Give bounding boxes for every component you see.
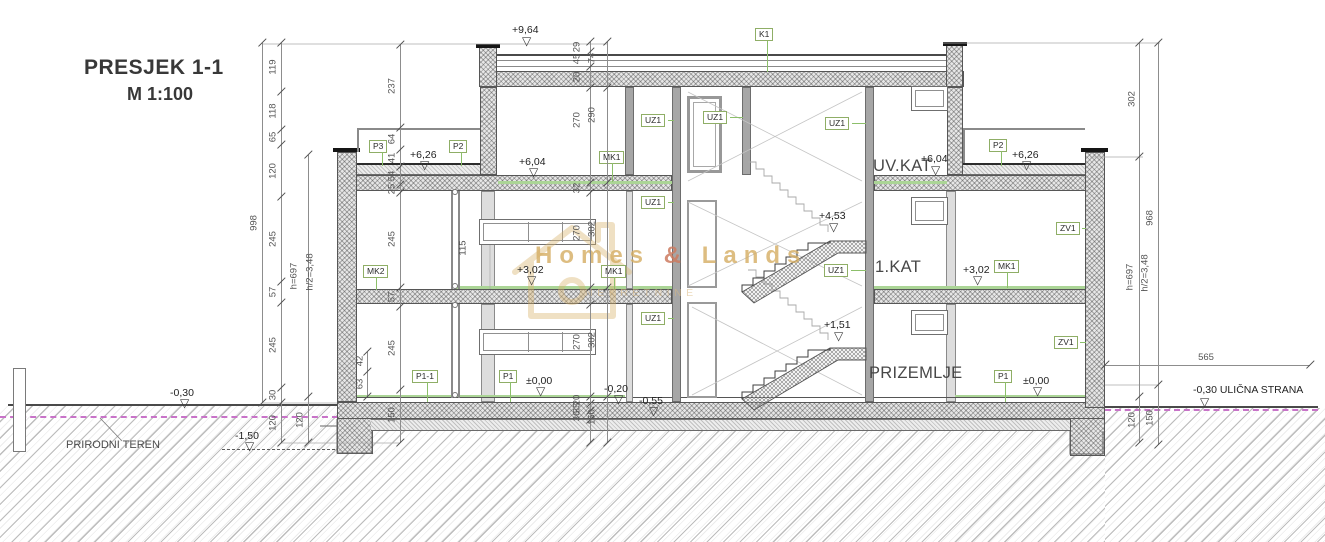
dim-label: 270	[572, 225, 583, 241]
tag-label-uz1: UZ1	[641, 312, 665, 325]
tag-label-p1-1: P1-1	[412, 370, 438, 383]
dim-label: 25	[387, 184, 398, 195]
watermark-brand: Homes & Lands	[535, 242, 807, 270]
dim-label: 270	[572, 334, 583, 350]
dim-label: 65	[268, 132, 279, 143]
tag-leader-line	[612, 163, 613, 182]
tag-label-uz1: UZ1	[641, 196, 665, 209]
dim-chain-line	[367, 352, 368, 397]
dim-label: 245	[387, 231, 398, 247]
tag-label-p3: P3	[369, 140, 387, 153]
tag-label-zv1: ZV1	[1054, 336, 1078, 349]
dim-label: 57	[268, 287, 279, 298]
dim-label: 245	[268, 337, 279, 353]
tag-label-uz1: UZ1	[703, 111, 727, 124]
watermark-subline: NEKRETNINE	[585, 287, 698, 299]
tag-label-p1: P1	[499, 370, 517, 383]
dim-label: 968	[1145, 210, 1156, 226]
level-triangle-icon: ▽	[1022, 160, 1031, 170]
tag-leader-line	[1005, 382, 1006, 402]
dim-label: 290	[587, 107, 598, 123]
dim-label: 120	[268, 163, 279, 179]
dim-label: 120	[295, 412, 306, 428]
dim-label: 120	[268, 415, 279, 431]
level-triangle-icon: ▽	[1033, 386, 1042, 396]
dim-label: 245	[387, 340, 398, 356]
drawing-scale: M 1:100	[127, 84, 193, 105]
dim-label: 270	[572, 112, 583, 128]
tag-label-uz1: UZ1	[824, 264, 848, 277]
tag-leader-line	[730, 117, 743, 118]
dim-label: 57	[387, 292, 398, 303]
dim-chain-line	[400, 45, 401, 443]
note-text: 115	[458, 240, 469, 255]
tag-leader-line	[427, 382, 428, 402]
drawing-title: PRESJEK 1-1	[84, 56, 224, 80]
dim-label: h=697	[1125, 264, 1136, 291]
dim-label: 32	[572, 183, 583, 194]
level-triangle-icon: ▽	[180, 398, 189, 408]
watermark-ampersand: &	[664, 242, 688, 269]
tag-leader-line	[668, 318, 674, 319]
tag-leader-line	[1082, 228, 1086, 229]
tag-leader-line	[767, 41, 768, 72]
floor-name: 1.KAT	[875, 258, 921, 277]
dim-label: 237	[387, 78, 398, 94]
dim-label: 245	[268, 231, 279, 247]
tag-label-uz1: UZ1	[641, 114, 665, 127]
dim-chain-line	[308, 155, 309, 443]
tag-leader-line	[1001, 151, 1002, 166]
dim-chain-line	[281, 43, 282, 443]
dim-label: 36	[572, 411, 583, 422]
level-triangle-icon: ▽	[614, 394, 623, 404]
level-triangle-icon: ▽	[536, 386, 545, 396]
dim-label: h/2=3,48	[1140, 254, 1151, 291]
dim-label: 302	[587, 221, 598, 237]
tag-leader-line	[461, 152, 462, 166]
dim-label: 54	[387, 171, 398, 182]
tag-leader-line	[668, 120, 674, 121]
level-triangle-icon: ▽	[973, 275, 982, 285]
dim-label: 45	[572, 54, 583, 65]
dim-label: 998	[249, 215, 260, 231]
level-triangle-icon: ▽	[834, 331, 843, 341]
dim-chain-line	[590, 42, 591, 443]
dim-label: 64	[387, 134, 398, 145]
tag-leader-line	[668, 202, 674, 203]
tag-label-zv1: ZV1	[1056, 222, 1080, 235]
annotation-overlay: PRESJEK 1-1 M 1:100 Homes & Lands NEKRET…	[0, 0, 1325, 542]
tag-label-uz1: UZ1	[825, 117, 849, 130]
dim-label: 42	[355, 356, 366, 367]
dim-chain-line	[262, 43, 263, 403]
dim-label: 74	[587, 53, 598, 64]
tag-label-p1: P1	[994, 370, 1012, 383]
watermark-brand-pre: Homes	[535, 242, 650, 269]
tag-label-k1: K1	[755, 28, 773, 41]
level-triangle-icon: ▽	[522, 36, 531, 46]
level-triangle-icon: ▽	[931, 165, 940, 175]
level-triangle-icon: ▽	[420, 160, 429, 170]
dim-label: 150	[387, 407, 398, 423]
floor-name: PRIZEMLJE	[869, 364, 962, 383]
tag-leader-line	[382, 152, 383, 166]
dim-label: 29	[572, 42, 583, 53]
dim-label: 302	[587, 332, 598, 348]
tag-label-p2: P2	[989, 139, 1007, 152]
dim-chain-line	[1105, 365, 1310, 366]
level-triangle-icon: ▽	[529, 167, 538, 177]
level-triangle-icon: ▽	[1200, 397, 1209, 407]
tag-leader-line	[510, 382, 511, 402]
note-text: PRIRODNI TEREN	[66, 439, 160, 451]
dim-label: h=697	[289, 263, 300, 290]
tag-leader-line	[852, 123, 866, 124]
tag-leader-line	[376, 277, 377, 290]
dim-label: 20	[572, 72, 583, 83]
dim-label: 41	[387, 153, 398, 164]
dim-chain-line	[607, 42, 608, 443]
dim-label: 30	[268, 390, 279, 401]
dim-label: 118	[268, 103, 279, 118]
dim-label: 302	[1127, 91, 1138, 107]
dim-label: 63	[355, 379, 366, 390]
level-triangle-icon: ▽	[245, 441, 254, 451]
dim-chain-line	[1139, 43, 1140, 443]
level-triangle-icon: ▽	[829, 222, 838, 232]
dim-label: h/2=3,48	[305, 253, 316, 290]
dim-label: 565	[1198, 352, 1214, 363]
level-triangle-icon: ▽	[527, 275, 536, 285]
dim-label: 150	[1145, 410, 1156, 426]
level-marker: -0,30 ULIČNA STRANA	[1193, 384, 1303, 396]
tag-label-p2: P2	[449, 140, 467, 153]
tag-leader-line	[1080, 342, 1086, 343]
tag-leader-line	[1007, 272, 1008, 288]
tag-leader-line	[614, 277, 615, 289]
section-drawing-canvas: PRESJEK 1-1 M 1:100 Homes & Lands NEKRET…	[0, 0, 1325, 542]
level-triangle-icon: ▽	[649, 406, 658, 416]
dim-label: 150	[587, 409, 598, 425]
tag-leader-line	[851, 270, 866, 271]
watermark-brand-post: Lands	[702, 242, 808, 269]
dim-label: 119	[268, 59, 279, 74]
dim-label: 120	[1127, 412, 1138, 428]
